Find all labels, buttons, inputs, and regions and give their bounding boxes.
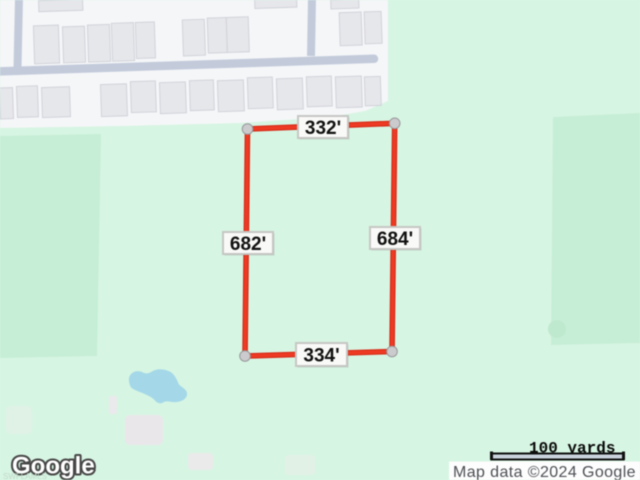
svg-text:Map data ©2024 Google: Map data ©2024 Google [453, 464, 636, 480]
svg-text:682': 682' [230, 234, 266, 255]
svg-text:684': 684' [377, 229, 413, 250]
svg-text:SWFLAMLS: SWFLAMLS [3, 472, 47, 480]
svg-text:332': 332' [305, 118, 341, 139]
svg-text:334': 334' [303, 345, 339, 366]
